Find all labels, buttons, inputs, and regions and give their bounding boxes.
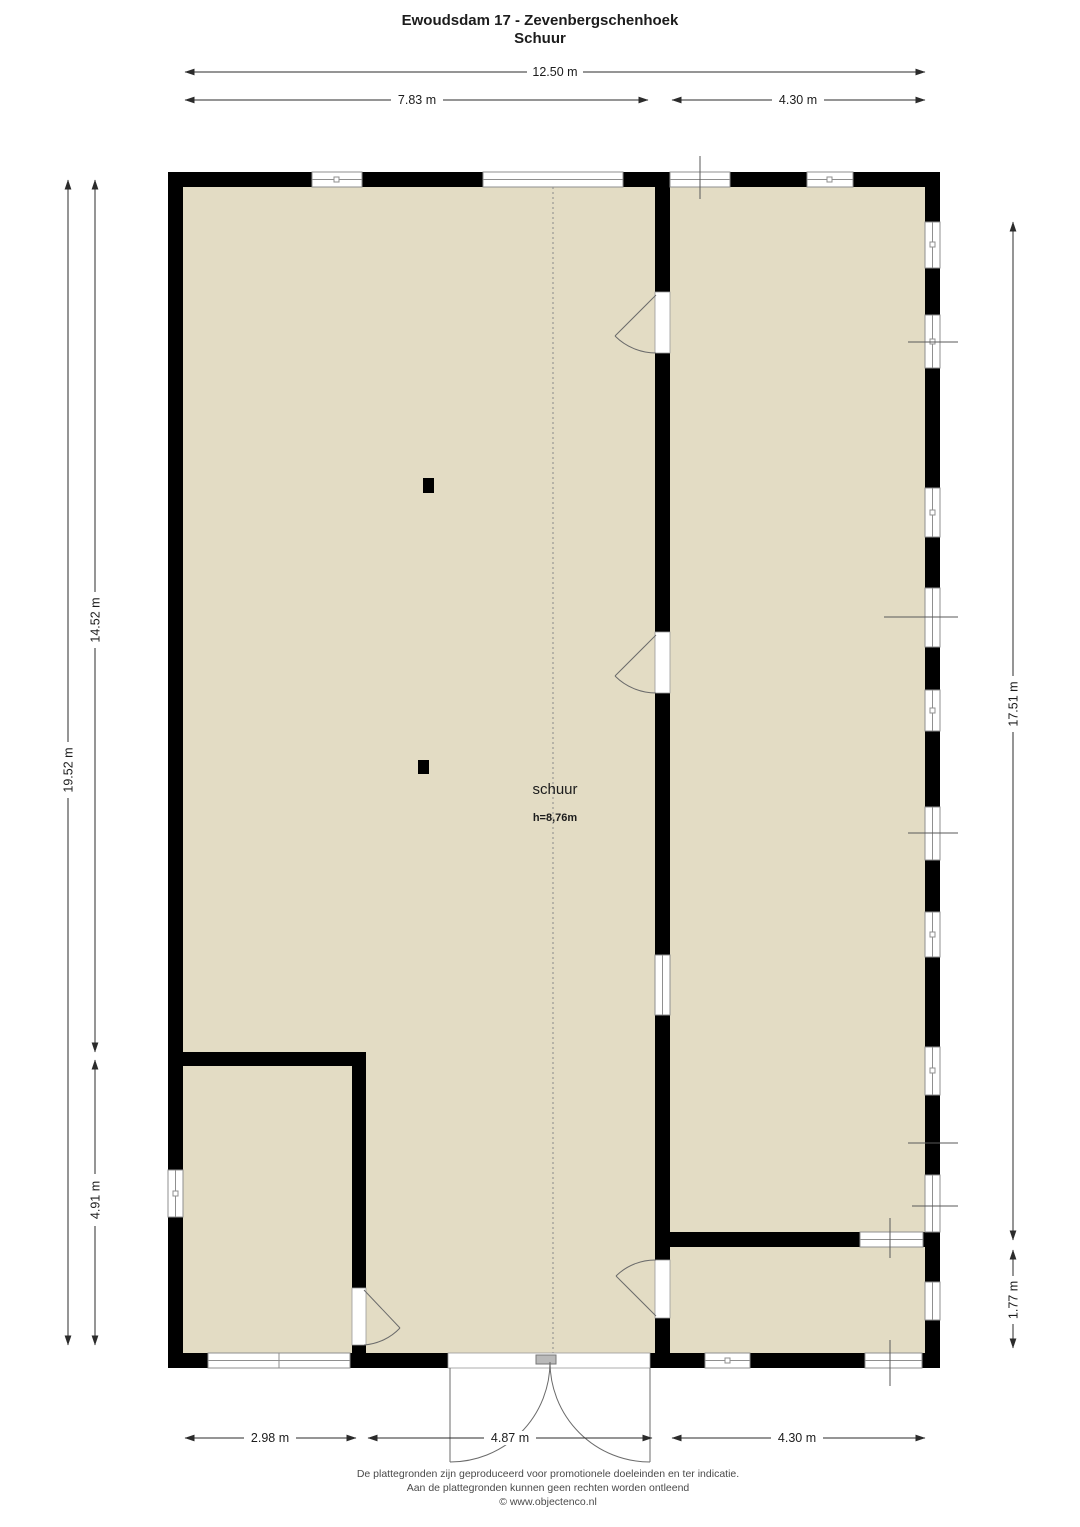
window (925, 1047, 940, 1095)
footer: De plattegronden zijn geproduceerd voor … (357, 1468, 739, 1508)
dimension-left-upper: 14.52 m (88, 180, 103, 1052)
pillar (418, 760, 429, 774)
floor-area (168, 172, 940, 1368)
dimension-left-lower: 4.91 m (88, 1060, 103, 1345)
dim-label: 4.30 m (778, 1431, 816, 1445)
window (925, 1282, 940, 1320)
dim-label: 1.77 m (1007, 1281, 1021, 1319)
window (925, 912, 940, 957)
dimension-right-upper: 17.51 m (1006, 222, 1021, 1240)
window (483, 172, 623, 187)
window (925, 1175, 940, 1232)
window (655, 955, 670, 1015)
dimension-top-right: 4.30 m (672, 93, 925, 107)
room-name: schuur (532, 781, 577, 798)
dim-label: 2.98 m (251, 1431, 289, 1445)
footer-line2: Aan de plattegronden kunnen geen rechten… (407, 1482, 690, 1494)
title-line2: Schuur (514, 30, 566, 47)
window (865, 1353, 922, 1368)
footer-line1: De plattegronden zijn geproduceerd voor … (357, 1468, 739, 1480)
dimension-top-left: 7.83 m (185, 93, 648, 107)
dimension-bottom-left: 2.98 m (185, 1431, 356, 1445)
dimension-left-outer: 19.52 m (61, 180, 76, 1345)
window (925, 690, 940, 731)
dim-label: 12.50 m (532, 65, 577, 79)
dim-label: 4.87 m (491, 1431, 529, 1445)
window (168, 1170, 183, 1217)
entrance-double-door (448, 1353, 650, 1462)
partition-wall-horizontal (168, 1052, 366, 1066)
window (208, 1353, 350, 1368)
dimension-top-total: 12.50 m (185, 65, 925, 79)
dimension-right-lower: 1.77 m (1006, 1250, 1021, 1348)
footer-line3: © www.objectenco.nl (499, 1496, 597, 1508)
window (925, 488, 940, 537)
dim-label: 19.52 m (62, 747, 76, 792)
room-height-label: h=8,76m (533, 812, 578, 824)
door-center-post (536, 1355, 556, 1364)
dimension-bottom-right: 4.30 m (672, 1431, 925, 1445)
window (705, 1353, 750, 1368)
window (860, 1232, 923, 1247)
title-line1: Ewoudsdam 17 - Zevenbergschenhoek (402, 12, 679, 29)
dim-label: 7.83 m (398, 93, 436, 107)
window (807, 172, 853, 187)
page-title: Ewoudsdam 17 - Zevenbergschenhoek Schuur (402, 12, 679, 47)
window (312, 172, 362, 187)
dimension-bottom-center: 4.87 m (368, 1431, 652, 1445)
dim-label: 14.52 m (89, 597, 103, 642)
dim-label: 4.91 m (89, 1181, 103, 1219)
window (925, 222, 940, 268)
floorplan-canvas: Ewoudsdam 17 - Zevenbergschenhoek Schuur (0, 0, 1080, 1527)
dim-label: 4.30 m (779, 93, 817, 107)
dim-label: 17.51 m (1007, 681, 1021, 726)
pillar (423, 478, 434, 493)
